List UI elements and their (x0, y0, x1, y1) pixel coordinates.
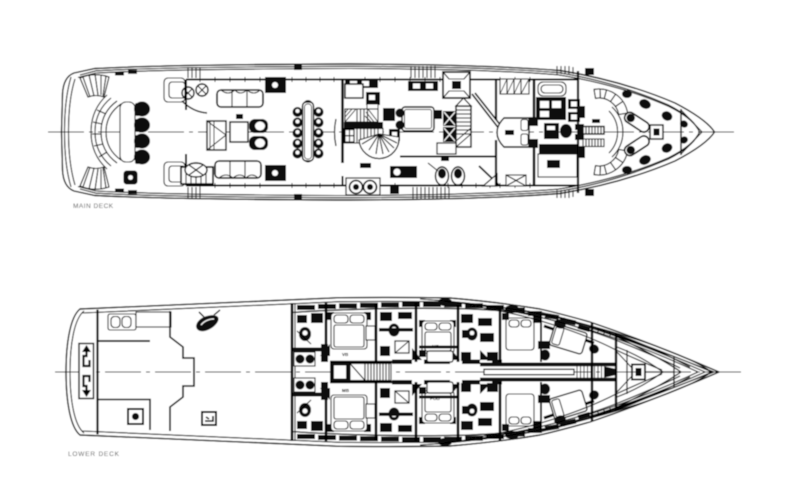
svg-text:VB: VB (342, 352, 349, 357)
svg-text:LOWER DECK: LOWER DECK (68, 451, 120, 458)
svg-text:MAIN DECK: MAIN DECK (73, 203, 114, 210)
svg-text:MB: MB (342, 388, 350, 393)
